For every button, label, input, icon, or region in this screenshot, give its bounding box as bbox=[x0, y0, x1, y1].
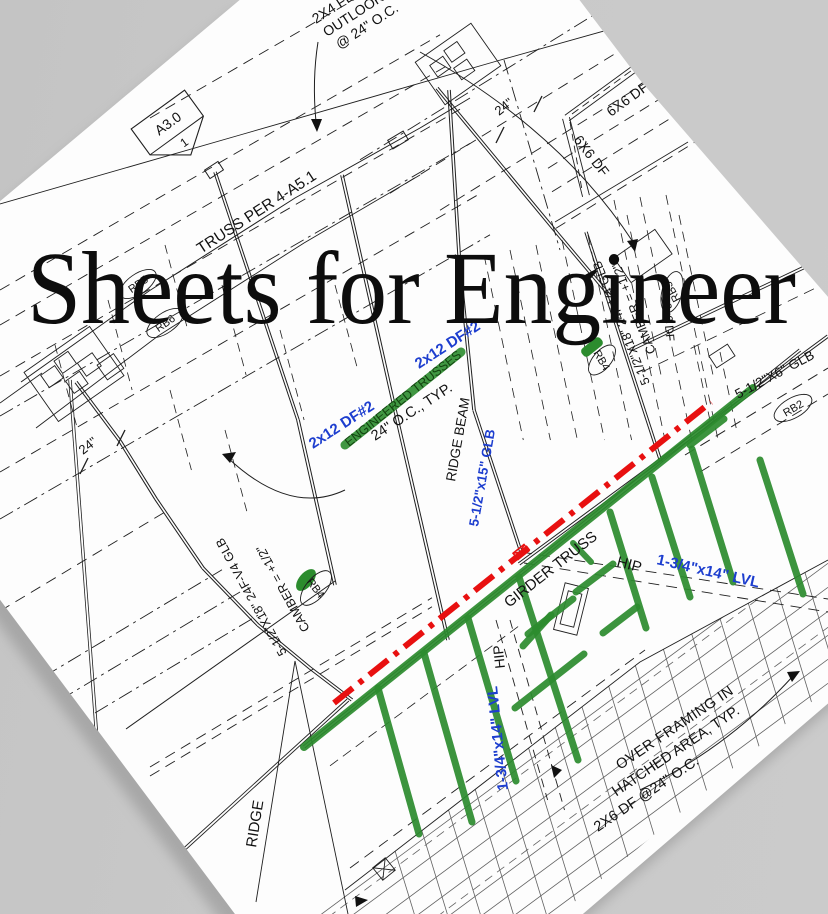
svg-text:Sheets for Engineer: Sheets for Engineer bbox=[27, 231, 796, 346]
svg-text:HIP: HIP bbox=[490, 644, 508, 669]
